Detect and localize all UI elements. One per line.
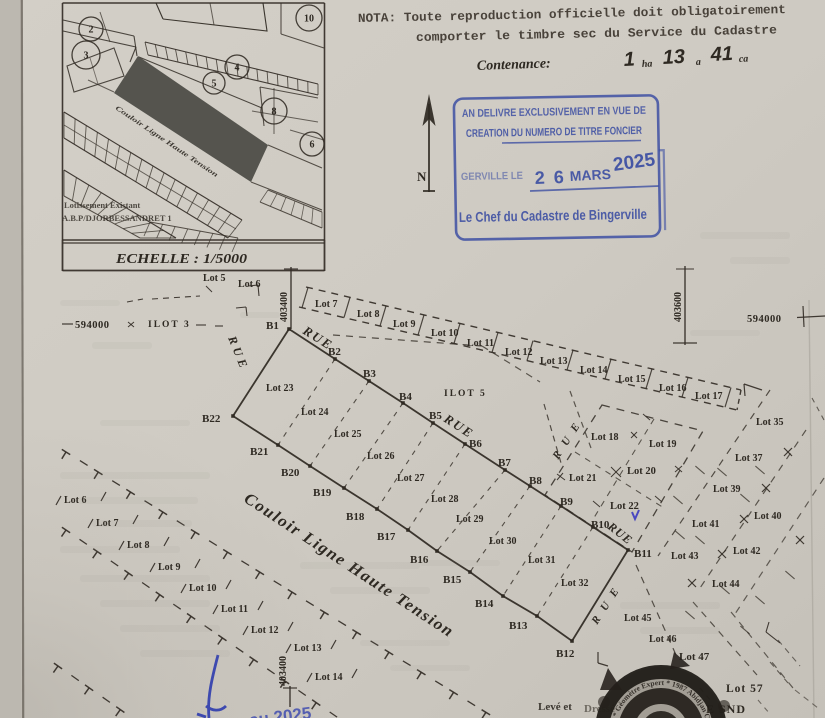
svg-text:Lot 10: Lot 10 (189, 583, 217, 594)
svg-text:8: 8 (272, 107, 277, 118)
svg-text:6: 6 (310, 140, 315, 151)
svg-text:N: N (417, 169, 427, 184)
svg-text:Lot 19: Lot 19 (649, 439, 677, 450)
svg-text:403600: 403600 (673, 292, 684, 322)
svg-text:B3: B3 (363, 368, 376, 380)
svg-text:Lot 31: Lot 31 (528, 555, 556, 566)
svg-text:Lot 30: Lot 30 (489, 536, 517, 547)
svg-text:Lot 13: Lot 13 (294, 643, 322, 654)
svg-text:B11: B11 (634, 548, 652, 560)
svg-text:Lot 27: Lot 27 (397, 473, 425, 484)
svg-text:a: a (696, 57, 702, 68)
svg-text:Lot 14: Lot 14 (580, 365, 608, 376)
svg-text:403400: 403400 (279, 292, 290, 322)
svg-text:Lot 20: Lot 20 (627, 466, 656, 477)
svg-text:10: 10 (304, 14, 314, 25)
svg-text:B17: B17 (377, 531, 396, 543)
svg-text:Lot 11: Lot 11 (221, 604, 248, 615)
svg-text:Lot 57: Lot 57 (726, 683, 764, 695)
svg-text:Lot 11: Lot 11 (467, 338, 494, 349)
svg-text:Lot 29: Lot 29 (456, 514, 484, 525)
svg-text:Lot 12: Lot 12 (251, 625, 279, 636)
svg-text:Lot 17: Lot 17 (695, 391, 723, 402)
svg-text:Lot 16: Lot 16 (659, 383, 687, 394)
svg-text:Contenance:: Contenance: (477, 56, 551, 74)
svg-text:Lot 23: Lot 23 (266, 383, 294, 394)
svg-text:Lot 5: Lot 5 (203, 273, 226, 284)
svg-text:B19: B19 (313, 487, 332, 499)
svg-text:Lot 21: Lot 21 (569, 473, 597, 484)
svg-text:Lot 15: Lot 15 (618, 374, 646, 385)
svg-text:Lot 41: Lot 41 (692, 519, 720, 530)
svg-text:B8: B8 (529, 475, 542, 487)
svg-text:ECHELLE : 1/5000: ECHELLE : 1/5000 (115, 252, 247, 267)
svg-text:13: 13 (662, 46, 685, 69)
svg-text:403400: 403400 (278, 656, 289, 686)
svg-text:2 6: 2 6 (534, 167, 566, 188)
svg-text:2: 2 (89, 25, 94, 36)
svg-text:Lot 26: Lot 26 (367, 451, 395, 462)
svg-text:B13: B13 (509, 620, 528, 632)
svg-text:1: 1 (623, 48, 635, 71)
svg-text:5: 5 (212, 79, 217, 90)
svg-text:Lot 44: Lot 44 (712, 579, 740, 590)
svg-text:Lot 13: Lot 13 (540, 356, 568, 367)
svg-text:B18: B18 (346, 511, 365, 523)
svg-text:Lot 25: Lot 25 (334, 429, 362, 440)
svg-text:ILOT 3: ILOT 3 (148, 320, 191, 330)
svg-text:Lot 12: Lot 12 (505, 347, 533, 358)
svg-text:Lot 46: Lot 46 (649, 634, 677, 645)
svg-text:594000: 594000 (747, 314, 782, 325)
svg-text:Lot 8: Lot 8 (357, 309, 380, 320)
svg-text:Lot 42: Lot 42 (733, 546, 761, 557)
svg-text:ILOT 5: ILOT 5 (444, 389, 487, 399)
svg-text:ca: ca (739, 54, 749, 65)
svg-text:B7: B7 (498, 457, 511, 469)
svg-text:Lot 32: Lot 32 (561, 578, 589, 589)
svg-text:Lot 7: Lot 7 (315, 299, 338, 310)
svg-text:B4: B4 (399, 391, 412, 403)
svg-text:Lot 35: Lot 35 (756, 417, 784, 428)
svg-text:A.B.P/DJORBESSANDRET 1: A.B.P/DJORBESSANDRET 1 (62, 213, 172, 223)
svg-text:B6: B6 (469, 438, 482, 450)
svg-text:B9: B9 (560, 496, 573, 508)
svg-text:Lot 18: Lot 18 (591, 432, 619, 443)
svg-text:Lotissement Existant: Lotissement Existant (64, 200, 140, 210)
svg-text:B1: B1 (266, 320, 279, 332)
svg-text:Levé et: Levé et (538, 701, 572, 713)
svg-text:B20: B20 (281, 467, 300, 479)
svg-text:Lot 45: Lot 45 (624, 613, 652, 624)
svg-text:Lot 43: Lot 43 (671, 551, 699, 562)
svg-text:Lot 9: Lot 9 (393, 319, 416, 330)
svg-text:Lot 40: Lot 40 (754, 511, 782, 522)
svg-text:B21: B21 (250, 446, 268, 458)
svg-text:Lot 28: Lot 28 (431, 494, 459, 505)
svg-text:594000: 594000 (75, 320, 110, 331)
svg-text:Lot 10: Lot 10 (431, 328, 459, 339)
svg-text:Lot 24: Lot 24 (301, 407, 329, 418)
svg-text:Lot 6: Lot 6 (238, 279, 261, 290)
svg-text:B12: B12 (556, 648, 575, 660)
svg-text:MARS: MARS (569, 166, 611, 184)
svg-text:B14: B14 (475, 598, 494, 610)
svg-text:B22: B22 (202, 413, 221, 425)
svg-text:ha: ha (642, 58, 653, 70)
svg-text:3: 3 (84, 51, 89, 62)
svg-text:B15: B15 (443, 574, 462, 586)
svg-text:GERVILLE LE: GERVILLE LE (461, 170, 523, 183)
svg-text:Lot 14: Lot 14 (315, 672, 343, 683)
svg-text:Lot 37: Lot 37 (735, 453, 763, 464)
svg-text:Lot 9: Lot 9 (158, 562, 181, 573)
svg-text:41: 41 (709, 43, 733, 66)
svg-text:B5: B5 (429, 410, 442, 422)
svg-text:Lot 22: Lot 22 (610, 501, 639, 512)
svg-text:4: 4 (235, 63, 240, 74)
svg-text:Le Chef du Cadastre de Bingerv: Le Chef du Cadastre de Bingerville (459, 206, 647, 225)
svg-text:Lot 39: Lot 39 (713, 484, 741, 495)
